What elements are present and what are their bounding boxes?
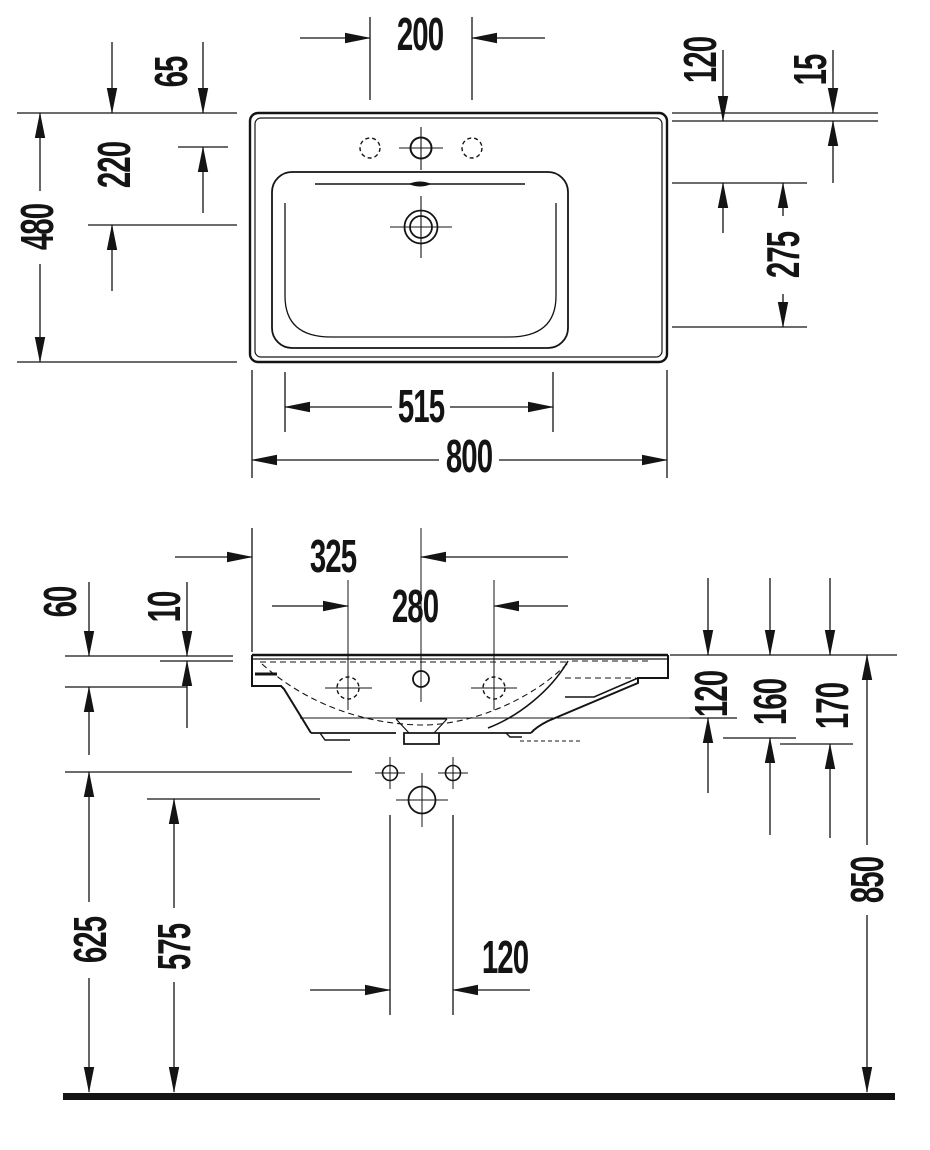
dim-label-apron-height: 60: [37, 587, 83, 618]
dim-label-overall-body-height: 170: [809, 683, 855, 729]
dim-label-top-to-rear-wall-bottom: 120: [688, 671, 734, 717]
dim-label-outlet-height: 575: [151, 924, 197, 970]
dim-label-rim-height-above-floor: 850: [844, 857, 890, 903]
dim-label-overall-width: 800: [446, 433, 492, 479]
dim-label-rear-edge-thickness: 15: [787, 55, 833, 86]
dim-label-bowl-width: 515: [398, 383, 444, 429]
top-view-faucet-holes: [360, 127, 482, 170]
dim-label-top-to-outlet-flange: 160: [747, 679, 793, 725]
dim-label-faucet-hole-spacing: 200: [397, 11, 443, 57]
top-view-drain: [390, 196, 452, 258]
dim-label-rim-to-faucet-axis: 65: [148, 57, 194, 88]
front-view-fixing-holes: [375, 757, 468, 827]
dim-label-fixing-hole-spacing: 120: [482, 934, 528, 980]
dim-label-overall-depth: 480: [14, 204, 60, 250]
dim-label-side-hole-spacing: 280: [392, 583, 438, 629]
dim-label-rim-thickness: 10: [141, 592, 187, 623]
dim-label-rim-to-drain-axis: 220: [91, 142, 137, 188]
dim-label-overflow-to-bowl-front: 275: [760, 232, 806, 278]
top-view-basin-outline: [250, 113, 667, 362]
dim-label-rear-edge-to-overflow: 120: [677, 37, 723, 83]
floor-line: [63, 1093, 895, 1100]
dim-label-fixing-hole-height: 625: [67, 917, 113, 963]
dim-label-left-edge-to-faucet-axis: 325: [310, 533, 356, 579]
washbasin-technical-drawing: 200 65 220 480 120 15 275 515 800 325 28…: [0, 0, 930, 1150]
